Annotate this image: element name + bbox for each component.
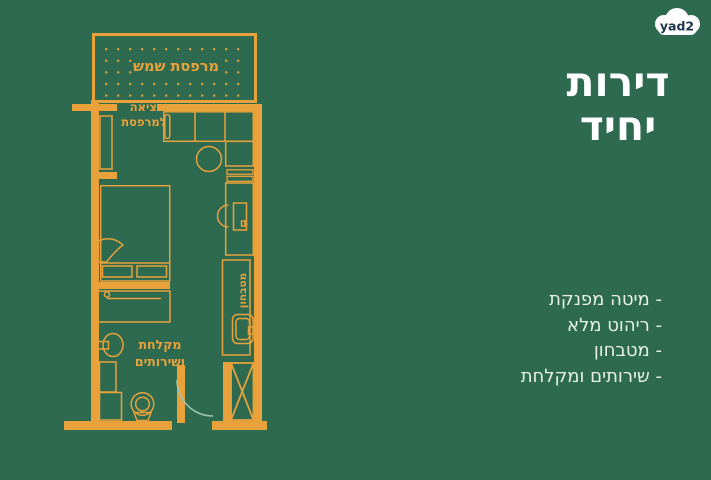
monitor-detail xyxy=(242,221,246,226)
pillow-right xyxy=(137,266,167,277)
wall-bottom-right xyxy=(212,421,267,430)
utility-closet xyxy=(231,363,254,420)
yad2-logo-text: yad2 xyxy=(660,19,694,34)
balcony-label: מרפסת שמש xyxy=(133,59,219,75)
yad2-logo-cloud: yad2 xyxy=(651,7,703,39)
round-table xyxy=(197,147,222,172)
wall-closet-stub xyxy=(223,362,231,421)
bed xyxy=(99,186,170,281)
kitchenette-label: מטבחון xyxy=(237,273,249,309)
shower xyxy=(98,291,171,322)
bathroom-cabinet-upper xyxy=(100,362,117,392)
wall-bathroom-horizontal xyxy=(91,282,170,289)
bathroom-cabinet-lower xyxy=(100,393,122,421)
bathroom-label-line1: מקלחת xyxy=(139,337,182,352)
wall-mid-stub xyxy=(99,172,117,179)
shower-head xyxy=(104,292,109,297)
wall-right xyxy=(254,104,262,430)
balcony-exit-label-line1: יציאה xyxy=(130,100,161,114)
blanket-fold xyxy=(99,239,124,262)
wall-top-right xyxy=(157,104,262,111)
balcony-door-leaf xyxy=(100,116,112,169)
yad2-logo: yad2 xyxy=(651,7,703,39)
feature-item-bed: - מיטה מפנקת xyxy=(521,287,662,313)
desk xyxy=(218,183,254,255)
wall-bottom-left xyxy=(64,421,172,430)
feature-item-bathroom: - שירותים ומקלחת xyxy=(521,364,662,390)
kitchen-sink-basin xyxy=(236,319,250,340)
balcony: מרפסת שמש xyxy=(94,35,256,102)
bathroom-sink xyxy=(96,334,124,421)
page-title: דירות יחיד xyxy=(498,60,711,148)
feature-item-kitchenette: - מטבחון xyxy=(521,338,662,364)
shelf xyxy=(227,170,253,182)
wall-bathroom-vertical xyxy=(177,365,185,423)
title-line-2: יחיד xyxy=(498,104,711,148)
walls xyxy=(64,100,267,430)
wall-left xyxy=(91,100,99,430)
title-line-1: דירות xyxy=(498,60,711,104)
desk-chair xyxy=(218,205,229,227)
pillow-left xyxy=(103,266,133,277)
sofa xyxy=(164,112,254,166)
feature-item-furniture: - ריהוט מלא xyxy=(521,313,662,339)
balcony-exit-label-line2: למרפסת xyxy=(121,115,166,129)
toilet xyxy=(131,393,154,421)
flyer-background: מרפסת שמש xyxy=(0,0,711,480)
bathroom-label-line2: ושירותים xyxy=(135,354,185,369)
feature-list: - מיטה מפנקת - ריהוט מלא - מטבחון - שירו… xyxy=(521,287,662,390)
